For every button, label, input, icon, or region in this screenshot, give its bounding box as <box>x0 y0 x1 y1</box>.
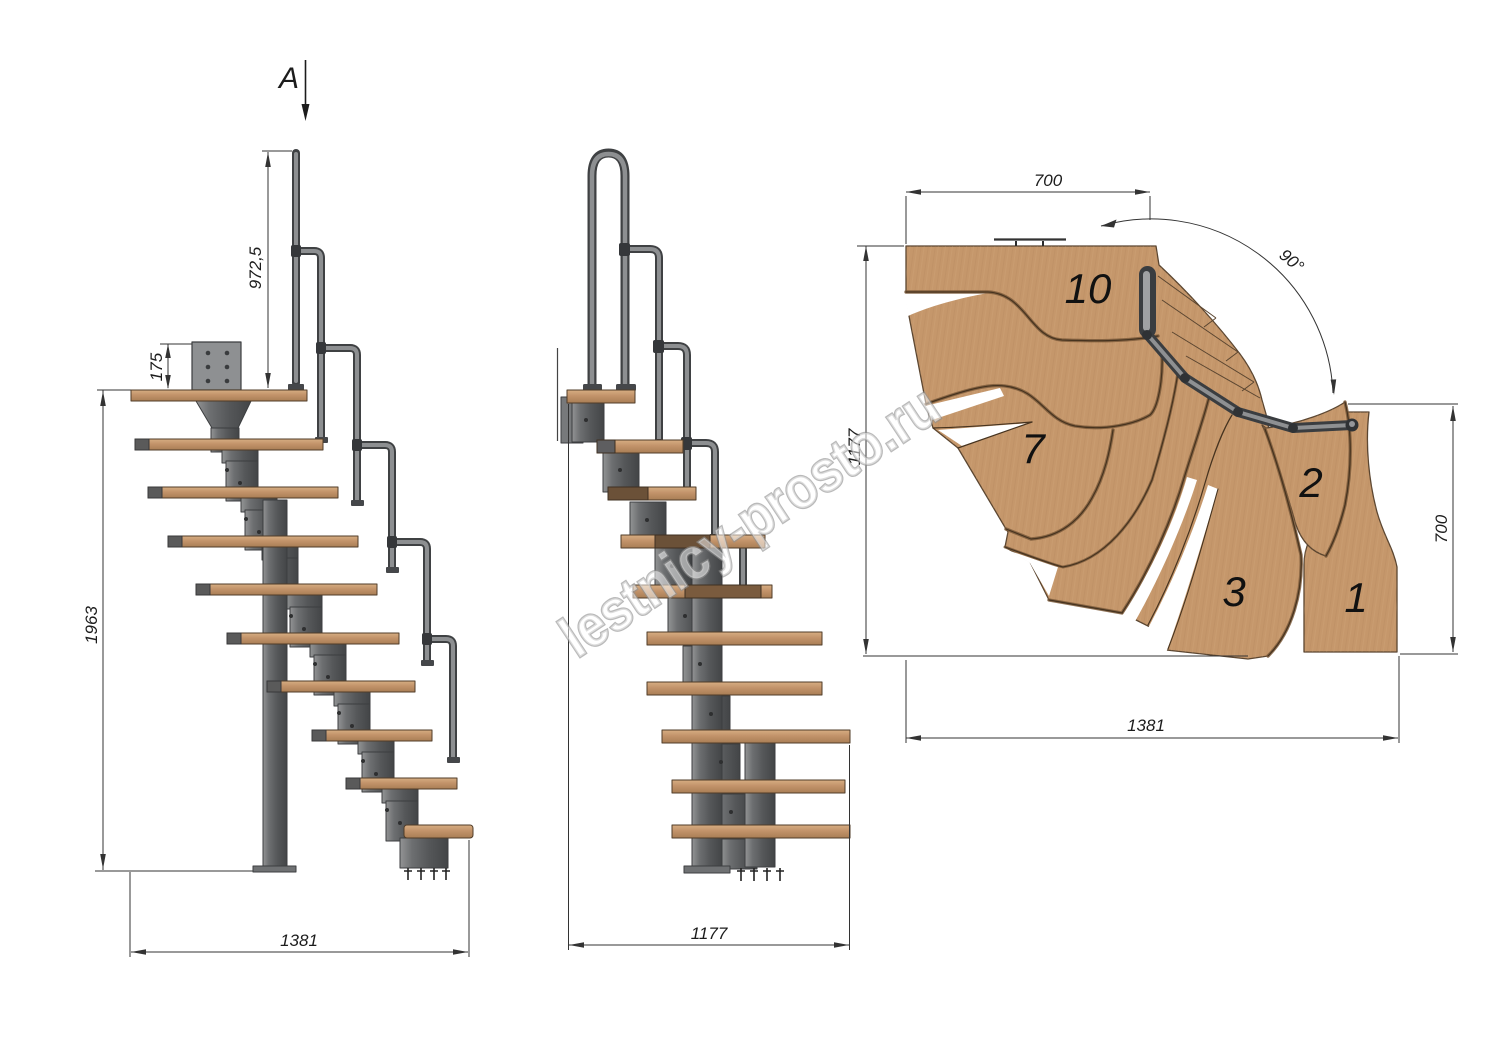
svg-text:175: 175 <box>147 352 166 381</box>
svg-text:972,5: 972,5 <box>246 246 265 289</box>
svg-text:3: 3 <box>1222 568 1245 615</box>
svg-text:700: 700 <box>1034 171 1063 190</box>
svg-text:1177: 1177 <box>691 924 728 943</box>
svg-text:7: 7 <box>1021 425 1046 472</box>
svg-text:10: 10 <box>1065 265 1112 312</box>
svg-text:A: A <box>277 62 299 95</box>
svg-text:1381: 1381 <box>1127 716 1165 735</box>
svg-text:2: 2 <box>1298 459 1322 506</box>
svg-text:1963: 1963 <box>82 606 101 644</box>
svg-text:1: 1 <box>1344 574 1367 621</box>
svg-text:1381: 1381 <box>280 931 318 950</box>
svg-text:700: 700 <box>1432 514 1451 543</box>
